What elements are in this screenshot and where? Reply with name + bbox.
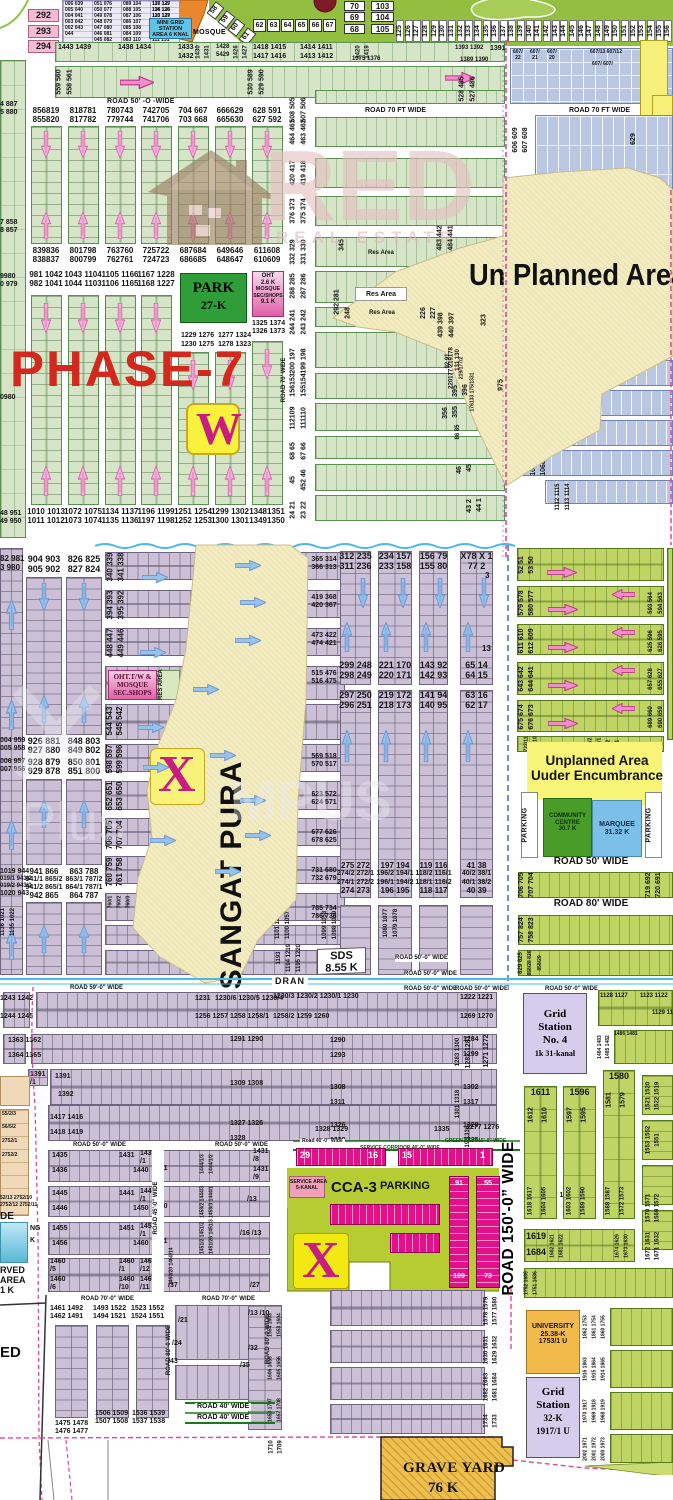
svg-text:REAL ESTATE: REAL ESTATE <box>276 228 457 247</box>
svg-text:MPUS: MPUS <box>230 769 392 832</box>
svg-text:Plus: Plus <box>20 792 125 850</box>
svg-text:RED: RED <box>264 130 475 242</box>
